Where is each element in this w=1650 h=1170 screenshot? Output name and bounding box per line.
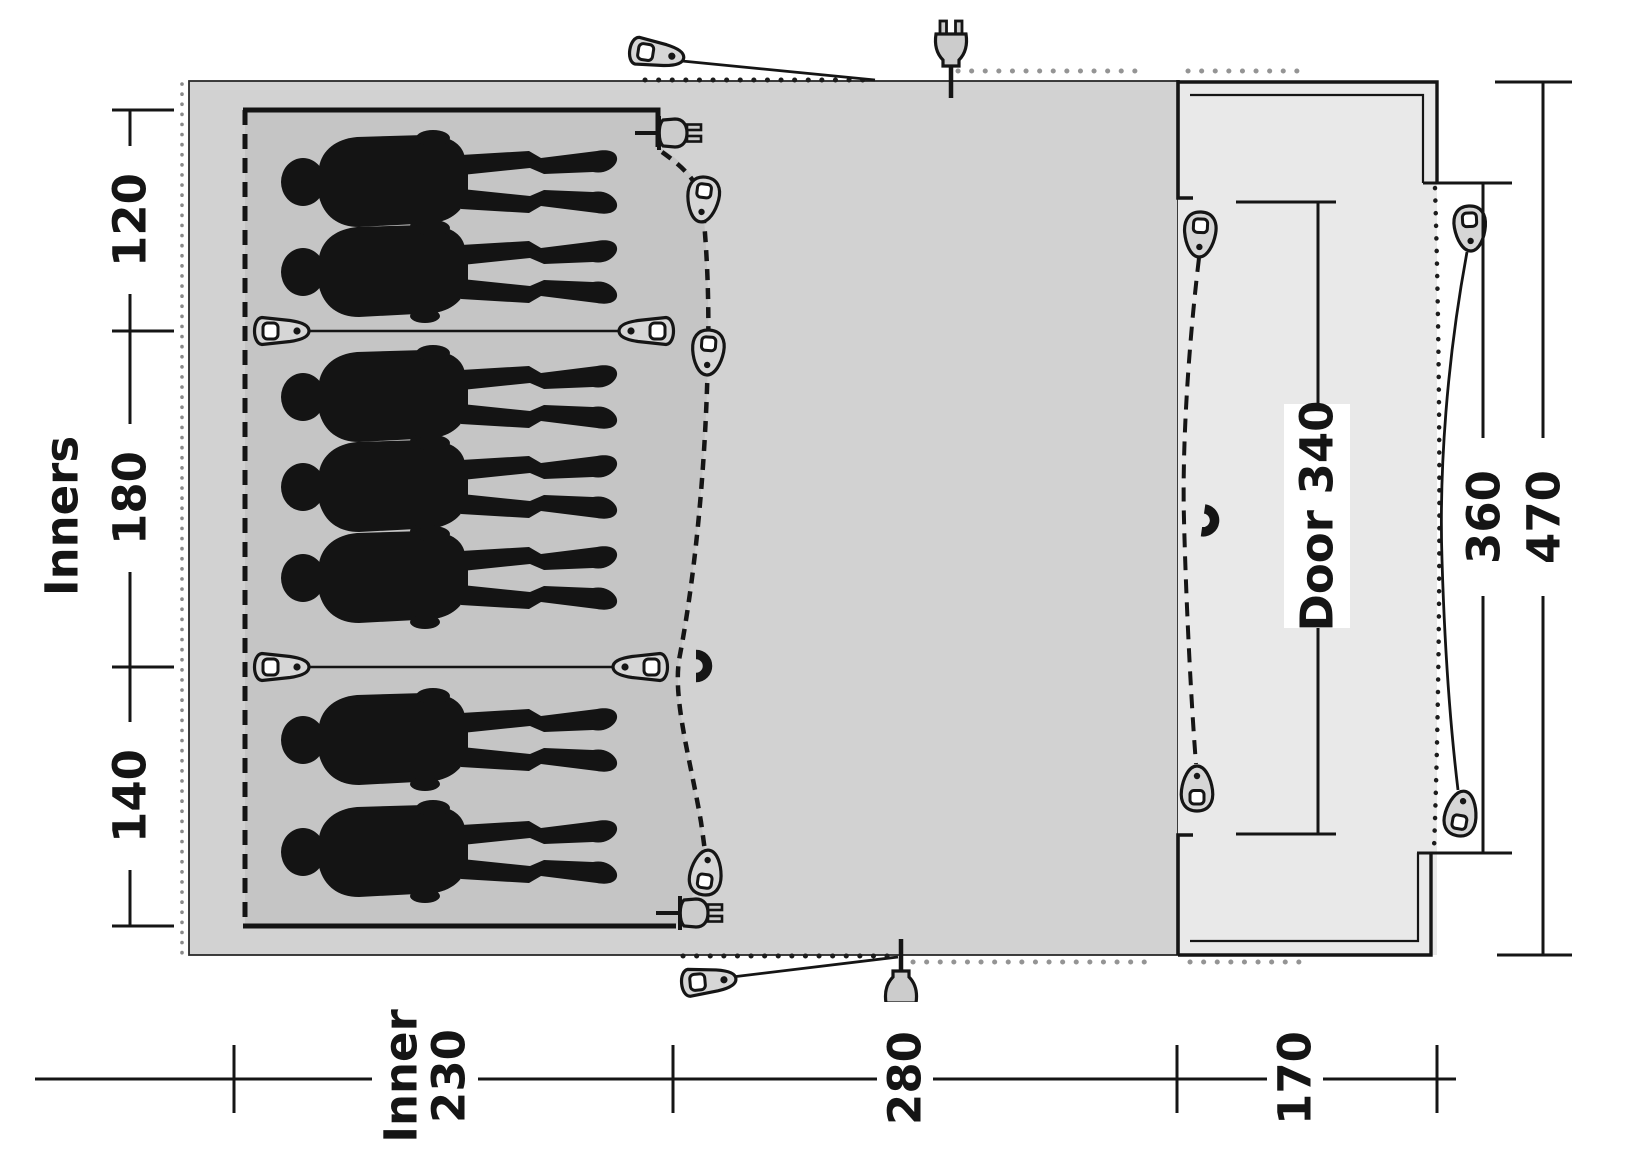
zip-toggle-icon bbox=[619, 318, 674, 345]
front-opening-label: 360 bbox=[1458, 470, 1511, 564]
inner-bedroom-area bbox=[245, 110, 708, 926]
zip-toggle-icon bbox=[680, 965, 737, 997]
zip-toggle-icon bbox=[613, 654, 668, 681]
porch-depth-label: 170 bbox=[1269, 1031, 1322, 1125]
living-depth-label: 280 bbox=[879, 1031, 932, 1125]
compartment-width-label: 180 bbox=[104, 451, 157, 545]
inner-depth-label-value: 230 bbox=[423, 1029, 476, 1123]
door-width-label: Door 340 bbox=[1291, 401, 1344, 632]
zip-toggle-icon bbox=[255, 318, 310, 345]
inners-axis-label: Inners bbox=[36, 436, 89, 596]
left-dimension: 120 180 140 Inners bbox=[36, 110, 175, 926]
zip-toggle-icon bbox=[628, 36, 686, 71]
inner-depth-label-word: Inner bbox=[375, 1008, 428, 1142]
guy-line-bottom bbox=[680, 957, 898, 997]
toggle-icon bbox=[1441, 789, 1480, 839]
guy-line-top bbox=[628, 36, 875, 80]
toggle-icon bbox=[1181, 766, 1213, 811]
compartment-width-label: 140 bbox=[104, 749, 157, 843]
tent-floorplan-diagram: 120 180 140 Inners Inner 230 280 170 Doo… bbox=[0, 0, 1650, 1170]
bottom-dimension: Inner 230 280 170 bbox=[35, 1002, 1456, 1154]
total-width-label: 470 bbox=[1518, 470, 1571, 564]
zip-toggle-icon bbox=[255, 654, 310, 681]
compartment-width-label: 120 bbox=[104, 173, 157, 267]
